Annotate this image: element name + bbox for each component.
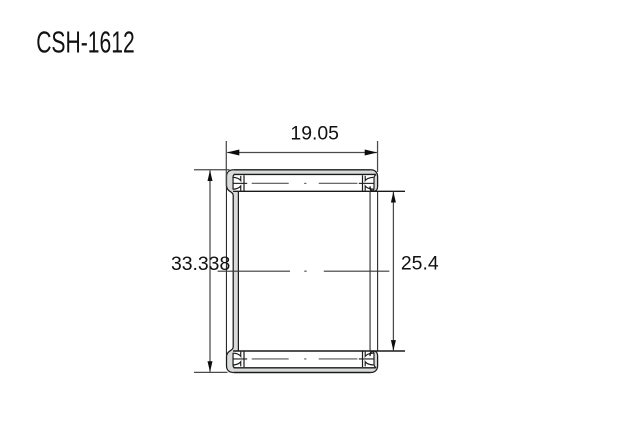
svg-text:33.338: 33.338 <box>171 253 230 275</box>
svg-text:19.05: 19.05 <box>290 123 339 145</box>
svg-text:25.4: 25.4 <box>401 253 439 275</box>
svg-text:CSH-1612: CSH-1612 <box>36 25 135 60</box>
